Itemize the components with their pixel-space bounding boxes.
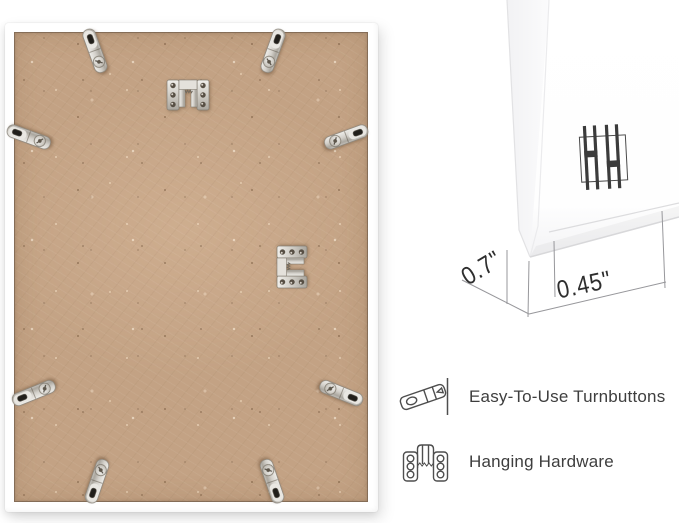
hanging-hardware-icon	[274, 245, 310, 289]
hanging-hardware-icon	[166, 77, 210, 113]
frame-corner-3d	[440, 0, 679, 370]
legend-label-hanging-hardware: Hanging Hardware	[469, 452, 614, 472]
hanging-rails-icon	[576, 122, 632, 195]
turnbutton-icon	[399, 374, 453, 418]
hanging-hardware-icon	[402, 438, 449, 484]
product-image: 0.7" 0.45" Easy-To-Use Turnbuttons	[0, 0, 679, 523]
legend-label-turnbuttons: Easy-To-Use Turnbuttons	[469, 387, 665, 407]
frame-back-photo	[5, 23, 378, 512]
